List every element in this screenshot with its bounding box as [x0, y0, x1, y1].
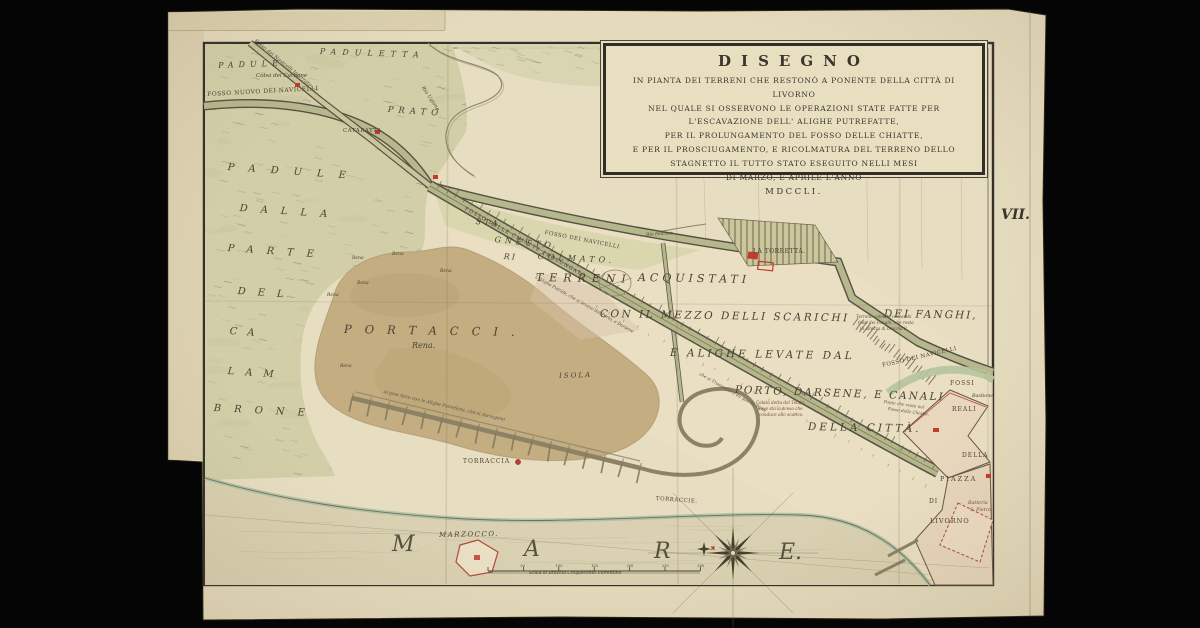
title-line: IN PIANTA DEI TERRENI CHE RESTONÒ A PONE… [612, 74, 976, 102]
map-title: DISEGNO [612, 52, 976, 70]
antique-map-of-livorno: DISEGNO IN PIANTA DEI TERRENI CHE RESTON… [0, 0, 1200, 628]
cartouche-inner-border: DISEGNO IN PIANTA DEI TERRENI CHE RESTON… [603, 43, 985, 175]
title-line: NEL QUALE SI OSSERVONO LE OPERAZIONI STA… [612, 102, 976, 116]
title-year: MDCCLI. [612, 185, 976, 200]
title-line: PER IL PROLUNGAMENTO DEL FOSSO DELLE CHI… [612, 129, 976, 143]
title-line: STAGNETTO IL TUTTO STATO ESEGUITO NELLI … [612, 157, 976, 171]
title-line: L'ESCAVAZIONE DELL' ALIGHE PUTREFATTE, [612, 115, 976, 129]
title-cartouche: DISEGNO IN PIANTA DEI TERRENI CHE RESTON… [600, 40, 988, 178]
title-line: DI MARZO, E APRILE L'ANNO [612, 171, 976, 185]
title-line: E PER IL PROSCIUGAMENTO, E RICOLMATURA D… [612, 143, 976, 157]
